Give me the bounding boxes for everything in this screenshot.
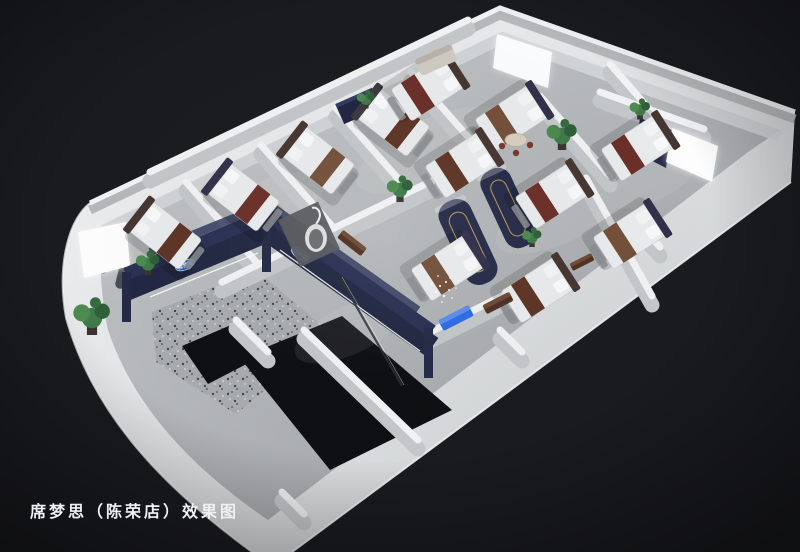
caption: 席梦思（陈荣店）效果图 xyxy=(30,502,239,521)
render-canvas: 席梦思 席梦思 xyxy=(0,0,800,552)
vignette xyxy=(0,0,800,552)
store-rendering: 席梦思 席梦思 xyxy=(0,0,800,552)
